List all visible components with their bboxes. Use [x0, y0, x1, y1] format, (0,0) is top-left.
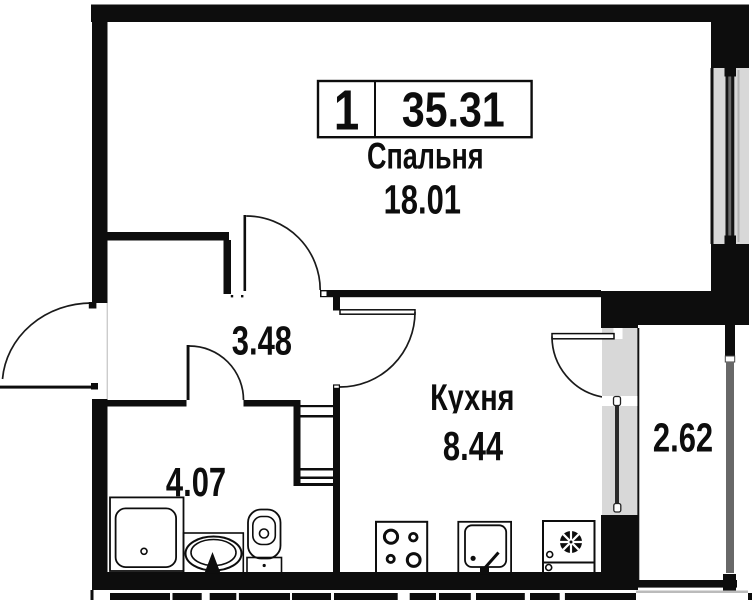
svg-text:1: 1 — [334, 77, 359, 141]
svg-text:18.01: 18.01 — [384, 176, 461, 222]
svg-text:3.48: 3.48 — [232, 317, 292, 363]
svg-text:35.31: 35.31 — [402, 82, 505, 137]
svg-text:2.62: 2.62 — [653, 414, 713, 460]
svg-text:Кухня: Кухня — [430, 377, 514, 418]
svg-text:8.44: 8.44 — [443, 423, 503, 469]
svg-text:Спальня: Спальня — [367, 134, 484, 176]
